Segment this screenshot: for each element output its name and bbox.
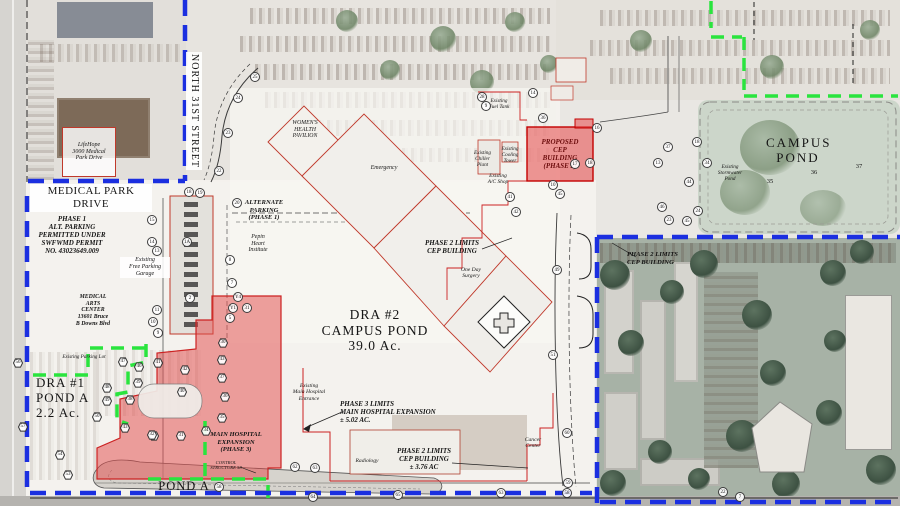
label-womens-health-pavilion: WOMEN'S HEALTH PAVILION [286, 120, 324, 140]
label-emergency: Emergency [364, 165, 404, 172]
label-medical-park-drive: MEDICAL PARK DRIVE [30, 184, 152, 212]
label-pepin-heart-institute: Pepin Heart Institute [241, 234, 275, 254]
label-existing-chiller-plant: Existing Chiller Plant [469, 150, 496, 168]
site-plan-map: MEDICAL PARK DRIVE NORTH 31ST STREET Lif… [0, 0, 900, 506]
label-control-structure-58: CONTROL STRUCTURE 58 [208, 460, 244, 471]
label-radiology: Radiology [348, 458, 386, 464]
label-dra2-campus-pond: DRA #2 CAMPUS POND 39.0 Ac. [316, 307, 434, 354]
label-one-day-surgery: One Day Surgery [452, 267, 490, 280]
road-hook2 [577, 296, 593, 348]
label-free-parking-garage: Existing Free Parking Garage [120, 257, 170, 278]
label-lifehope-building: LifeHope 3000 Medical Park Drive [62, 127, 116, 177]
label-phase1-alt-parking-note: PHASE 1 ALT. PARKING PERMITTED UNDER SWF… [24, 215, 120, 256]
cep-yard-building2 [551, 86, 573, 100]
entry-road-curve-dash [204, 64, 250, 180]
leader-phase3-arrow [303, 424, 311, 432]
label-main-hospital-expansion: MAIN HOSPITAL EXPANSION (PHASE 3) [204, 431, 268, 454]
label-existing-stormwater-pond: Existing Stormwater Pond [712, 164, 748, 182]
label-campus-pond: CAMPUS POND [766, 135, 830, 165]
pentagon-building [752, 402, 812, 472]
label-alternate-parking: ALTERNATE PARKING (PHASE 1) [238, 199, 290, 222]
label-phase2-limits-center: PHASE 2 LIMITS CEP BUILDING [418, 239, 486, 255]
label-existing-fuel-tank: Existing Fuel Tank [485, 98, 513, 110]
label-proposed-cep-building: PROPOSED CEP BUILDING (PHASE 2) [527, 127, 593, 181]
cep-yard-building [556, 58, 586, 82]
label-phase2-limits-right: PHASE 2 LIMITS CEP BUILDING [627, 251, 697, 266]
label-existing-parking-lot: Existing Parking Lot [53, 354, 115, 360]
label-existing-cooling-tower: Existing Cooling Tower [497, 146, 523, 164]
label-phase3-limits: PHASE 3 LIMITS MAIN HOSPITAL EXPANSION ±… [340, 400, 444, 424]
label-existing-ac-shop: Existing A/C Shop [482, 173, 514, 186]
ne-road-curve [600, 112, 668, 122]
label-pond-a-bottom: POND A [156, 479, 212, 494]
entry-road-curve [211, 68, 258, 182]
label-north-31st-street: NORTH 31ST STREET [186, 52, 202, 170]
road-hook [577, 233, 591, 279]
label-phase2-limits-bottom: PHASE 2 LIMITS CEP BUILDING ± 3.76 AC [390, 447, 458, 471]
label-medical-arts-center: MEDICAL ARTS CENTER 13601 Bruce B Downs … [70, 294, 116, 328]
ring-road-east [555, 213, 563, 486]
loop-road-island [138, 384, 202, 418]
leader-phase2-bottom [452, 463, 528, 468]
ring-road-east-dash [569, 215, 576, 487]
label-dra1-pond-a: DRA #1 POND A 2.2 Ac. [36, 376, 104, 421]
label-main-hospital-entrance: Existing Main Hospital Entrance [286, 383, 332, 402]
label-cancer-center: Cancer Center [518, 437, 548, 450]
